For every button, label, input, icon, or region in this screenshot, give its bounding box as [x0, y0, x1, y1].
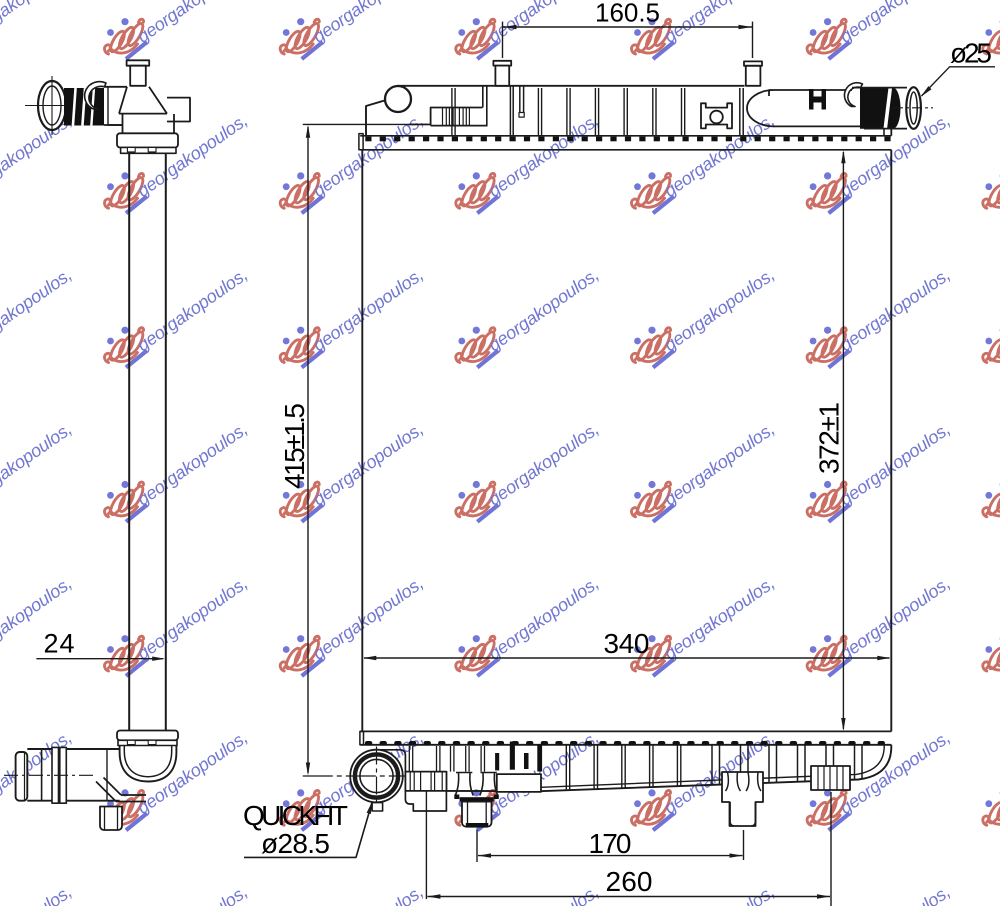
svg-text:ø25: ø25 [950, 38, 992, 69]
svg-text:340: 340 [604, 628, 650, 659]
svg-text:ø28.5: ø28.5 [261, 828, 330, 859]
svg-text:170: 170 [589, 828, 632, 859]
svg-text:260: 260 [606, 866, 653, 897]
svg-text:24: 24 [44, 629, 75, 659]
svg-text:QUICKFIT: QUICKFIT [243, 800, 348, 831]
svg-text:415±1.5: 415±1.5 [279, 403, 310, 489]
svg-text:372±1: 372±1 [814, 402, 845, 474]
svg-text:160.5: 160.5 [595, 0, 660, 28]
